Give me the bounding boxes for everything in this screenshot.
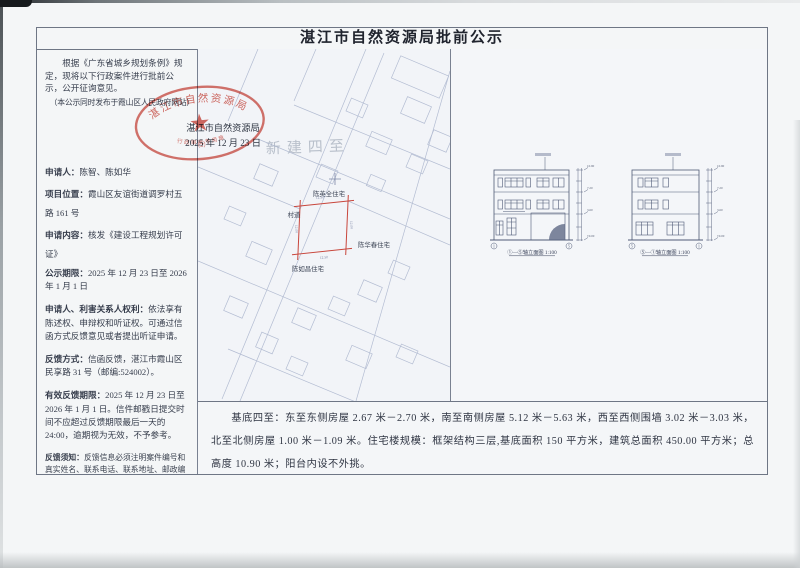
summary-text: 基底四至：东至东侧房屋 2.67 米－2.70 米，南至南侧房屋 5.12 米－… [211, 407, 754, 476]
building-outline [628, 170, 703, 240]
roof-annotation [535, 153, 551, 170]
svg-text:5: 5 [568, 244, 570, 248]
item-feedback-deadline-label: 有效反馈期限： [45, 390, 105, 400]
feedback-notice: 反馈须知：反馈信息必须注明案件编号和真实姓名、联系电话、联系地址、邮政编码，如反… [45, 452, 190, 474]
item-applicant-value: 陈智、陈如华 [79, 167, 131, 177]
plot-dimensions: 12.50 12.00 12.50 12.00 [294, 195, 353, 260]
left-column: 根据《广东省城乡规划条例》规定，现将以下行政案件进行批前公示，公开征询意见。 （… [37, 49, 198, 474]
agency-signature-block: 湛江市自然资源局 2025 年 12 月 23 日 [177, 121, 269, 150]
label-south-house: 陈如昌住宅 [292, 264, 325, 273]
svg-text:12.00: 12.00 [349, 221, 353, 229]
item-content: 申请内容：核发《建设工程规划许可证》 [45, 226, 190, 264]
svg-text:7.20: 7.20 [587, 186, 593, 190]
scan-edge-top [0, 0, 800, 3]
level-labels: 10.90 7.20 3.60 ±0.00 [717, 164, 725, 238]
page-title: 湛江市自然资源局批前公示 [37, 28, 767, 50]
roof-annotation [665, 153, 681, 170]
intro-paragraph: 根据《广东省城乡规划条例》规定，现将以下行政案件进行批前公示，公开征询意见。 [45, 57, 190, 95]
item-period-label: 公示期限： [45, 268, 88, 278]
scanned-notice-page: 湛江市自然资源局批前公示 根据《广东省城乡规划条例》规定，现将以下行政案件进行批… [0, 0, 800, 568]
site-plan-drawing: 新建四至 [198, 49, 450, 401]
axis-bubbles: 5 1 [629, 243, 702, 249]
item-period: 公示期限：2025 年 12 月 23 日至 2026 年 1 月 1 日 [45, 267, 190, 293]
label-village-road: 村道 [288, 210, 301, 219]
item-rights: 申请人、利害关系人权利：依法享有陈述权、申辩权和听证权。可通过信函方式反馈意见或… [45, 303, 190, 343]
svg-text:±0.00: ±0.00 [587, 234, 595, 238]
item-applicant: 申请人：陈智、陈如华 [45, 163, 190, 182]
svg-text:3.60: 3.60 [717, 208, 723, 212]
scan-edge-right [793, 120, 800, 568]
elevation-panel: 10.90 7.20 3.60 ±0.00 1 5 ①—⑤轴立面图 1:100 [451, 49, 767, 401]
label-north-house: 陈英全住宅 [313, 189, 346, 198]
item-feedback-method-label: 反馈方式： [45, 354, 88, 364]
parcel-lines [198, 49, 450, 401]
svg-text:5: 5 [631, 244, 633, 248]
elevation-caption: ①—⑤轴立面图 1:100 [507, 248, 557, 256]
scan-edge-bottom [0, 552, 800, 568]
axis-bubbles: 1 5 [491, 243, 572, 249]
dimension-stack [706, 168, 718, 242]
svg-text:10.90: 10.90 [717, 164, 725, 168]
windows [636, 178, 684, 235]
scan-edge-left [0, 0, 3, 568]
svg-text:1: 1 [493, 244, 495, 248]
agency-name: 湛江市自然资源局 [177, 121, 269, 136]
notice-table: 湛江市自然资源局批前公示 根据《广东省城乡规划条例》规定，现将以下行政案件进行批… [36, 27, 768, 475]
elevation-caption: ⑤—①轴立面图 1:100 [640, 248, 690, 256]
dimension-stack [576, 168, 588, 242]
item-location: 项目位置：霞山区友谊街道调罗村五路 161 号 [45, 185, 190, 223]
svg-text:12.00: 12.00 [294, 225, 298, 233]
label-east-house: 陈华春住宅 [358, 240, 391, 249]
elevation-drawing-rear: 10.90 7.20 3.60 ±0.00 5 1 ⑤—①轴立面图 1:100 [627, 149, 742, 259]
item-feedback-deadline: 有效反馈期限：2025 年 12 月 23 日至 2026 年 1 月 1 日。… [45, 389, 190, 442]
level-labels: 10.90 7.20 3.60 ±0.00 [587, 164, 595, 238]
svg-text:1: 1 [698, 244, 700, 248]
site-plan-panel: 新建四至 [198, 49, 451, 401]
svg-text:±0.00: ±0.00 [717, 234, 725, 238]
item-feedback-method: 反馈方式：信函反馈，湛江市霞山区民享路 31 号（邮编:524002）。 [45, 353, 190, 379]
svg-text:12.50: 12.50 [320, 255, 329, 260]
issue-date: 2025 年 12 月 23 日 [177, 136, 269, 151]
scan-corner-artifact [0, 0, 32, 7]
svg-text:10.90: 10.90 [587, 164, 595, 168]
svg-text:7.20: 7.20 [717, 186, 723, 190]
elevation-drawing-front: 10.90 7.20 3.60 ±0.00 1 5 ①—⑤轴立面图 1:100 [485, 149, 600, 259]
stair-fan [549, 224, 565, 240]
seal-spacer [45, 109, 190, 163]
item-location-label: 项目位置： [45, 189, 88, 199]
item-applicant-label: 申请人： [45, 167, 79, 177]
publish-note: （本公示同时发布于霞山区人民政府网站） [45, 97, 190, 110]
feedback-notice-label: 反馈须知： [45, 453, 84, 462]
item-rights-label: 申请人、利害关系人权利： [45, 304, 148, 314]
item-content-label: 申请内容： [45, 230, 88, 240]
summary-box: 基底四至：东至东侧房屋 2.67 米－2.70 米，南至南侧房屋 5.12 米－… [198, 401, 767, 474]
svg-text:3.60: 3.60 [587, 208, 593, 212]
plot-outline [292, 195, 354, 260]
